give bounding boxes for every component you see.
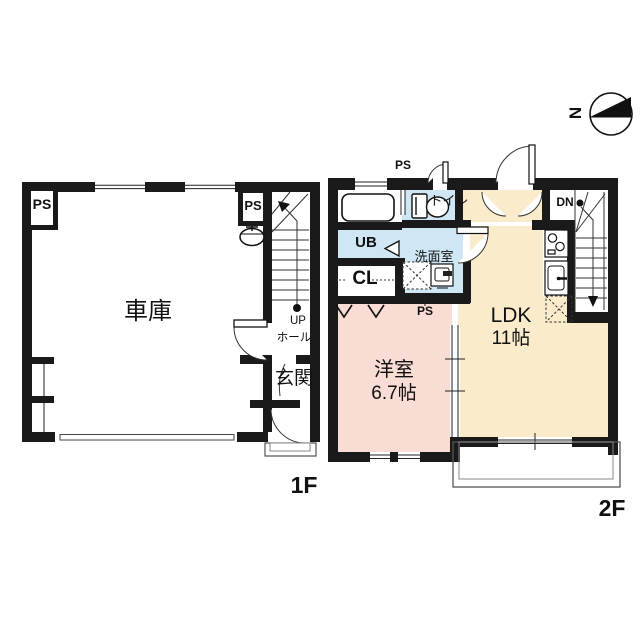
ldk-size-label: 11帖 (478, 329, 544, 349)
wall (32, 357, 54, 364)
ldk-entry-area (463, 188, 543, 222)
wall (296, 355, 320, 364)
garage-label: 車庫 (98, 299, 198, 324)
closet-label: CL (343, 269, 387, 289)
wall (310, 182, 320, 442)
wall (330, 296, 400, 304)
north-arrow-icon (590, 93, 632, 135)
ldk-label: LDK (478, 305, 544, 327)
wall (567, 312, 618, 323)
bathtub-icon (342, 194, 394, 221)
wall (328, 178, 338, 462)
washroom-label: 洗面室 (406, 250, 462, 264)
floor-plan-canvas: 車庫 PS PS UP ホール 玄関 1F トイレ UB 洗面室 CL PS P… (0, 0, 640, 640)
wall (572, 437, 618, 447)
hall-label: ホール (271, 332, 317, 344)
wall (333, 258, 400, 266)
down-label: DN (551, 196, 579, 209)
wall (328, 178, 618, 190)
door-swing (234, 320, 267, 360)
wall (463, 258, 471, 303)
stairs-up (272, 192, 309, 312)
faucet-icon (240, 226, 264, 246)
wall (338, 222, 402, 230)
wall (32, 396, 54, 403)
wall (567, 225, 575, 312)
entrance-step (265, 443, 316, 456)
balcony (453, 442, 620, 487)
wall (402, 220, 471, 228)
wall (250, 400, 300, 408)
bedroom-size-label: 6.7帖 (360, 384, 428, 404)
kitchen-counter-area (543, 226, 569, 296)
bath-label: UB (348, 235, 384, 251)
wall (328, 452, 460, 462)
entrance-label: 玄関 (270, 369, 318, 389)
compass-north-label: N (567, 103, 585, 123)
ps-label: PS (391, 159, 415, 172)
floor1-label: 1F (284, 473, 324, 497)
ps-label: PS (30, 197, 54, 212)
wall (22, 182, 320, 192)
ps-label: PS (413, 305, 437, 318)
bedroom-label: 洋室 (362, 360, 426, 381)
wall (450, 437, 460, 462)
up-label: UP (283, 315, 313, 327)
wall (542, 188, 550, 222)
floor2-label: 2F (592, 496, 632, 520)
toilet-label: トイレ (426, 194, 472, 208)
wall (395, 293, 470, 304)
wall (22, 432, 320, 442)
ps-label: PS (241, 199, 265, 213)
stairs-down (575, 190, 607, 312)
